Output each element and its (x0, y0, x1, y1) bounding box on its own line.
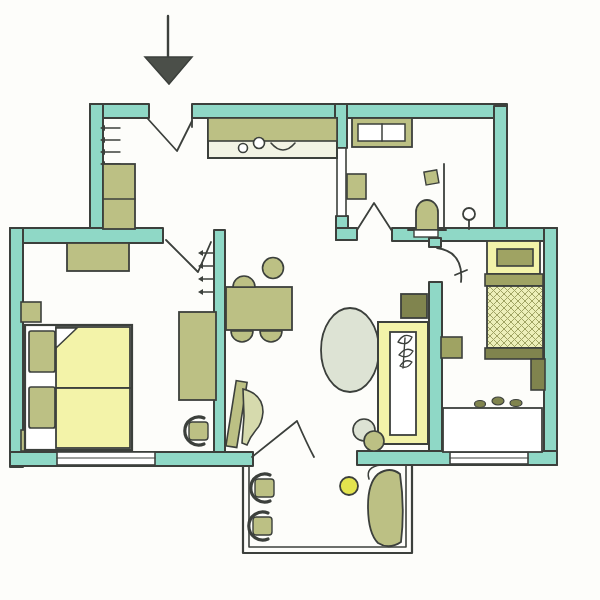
wall-shelf (347, 174, 366, 199)
wall-entry-left (90, 104, 103, 236)
floor-plan-sketch (0, 0, 600, 600)
nightstand-top (21, 302, 41, 322)
kitchen-counter-top-band (208, 118, 337, 141)
head-cushion (401, 294, 427, 318)
desk (443, 408, 542, 452)
room-kitchen (208, 118, 337, 158)
sofa (378, 322, 428, 444)
sofa-seat (390, 332, 416, 435)
wall-east-divider (429, 282, 442, 451)
wall-bathroom-right (494, 106, 507, 240)
bed-head-strip (485, 274, 543, 286)
lounge-chair (368, 470, 403, 546)
side-unit (531, 359, 545, 390)
glazed-partition (337, 148, 346, 216)
pillow-bottom (29, 387, 55, 428)
bed-mattress (487, 286, 543, 348)
hall-wardrobe (103, 164, 135, 229)
double-bed (25, 325, 132, 450)
wall-top-main (192, 104, 507, 118)
toilet-base (414, 230, 438, 237)
mattress-bottom (56, 388, 130, 448)
wall-hall-corner-horizontal (336, 228, 357, 240)
sink-bowl-small (239, 144, 248, 153)
dresser (67, 243, 129, 271)
sink-bowl-large (254, 138, 265, 149)
bed-foot-strip (485, 348, 543, 359)
balcony-side-table (340, 477, 358, 495)
wash-basin (463, 208, 475, 220)
round-rug (321, 308, 379, 392)
dining-table (226, 287, 292, 330)
bed-pillow (497, 249, 533, 266)
dining-chair-round (263, 258, 284, 279)
paper-holder (424, 170, 439, 185)
wall-east-right (544, 228, 557, 465)
wall-west-top (10, 228, 163, 243)
wardrobe (179, 312, 216, 400)
east-nightstand (441, 337, 462, 358)
toilet (416, 200, 438, 230)
wall-east-divider-stub (429, 238, 441, 247)
pouf-olive (364, 431, 384, 451)
pillow-top (29, 331, 55, 372)
